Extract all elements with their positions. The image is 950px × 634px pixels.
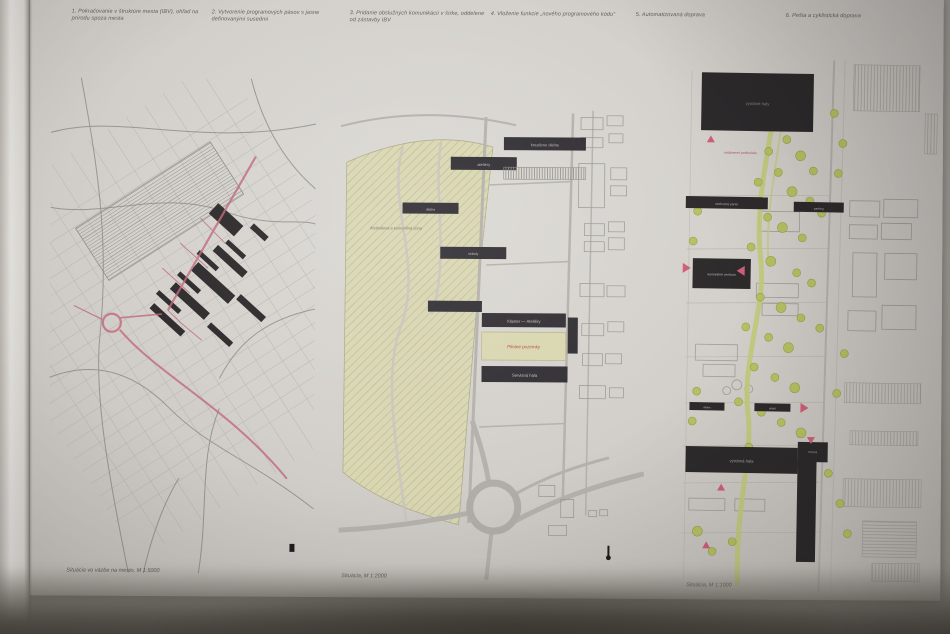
striped-bar: [504, 167, 586, 180]
street-grid: [48, 77, 316, 561]
svg-text:parking: parking: [814, 207, 824, 211]
l-building: [796, 442, 828, 562]
roundabout: [103, 314, 121, 332]
masterplan-map: festivalová a komunitná zóna: [338, 54, 646, 581]
heading-step-6: 6. Pešia a cyklistická doprava: [786, 13, 924, 21]
svg-text:dielne: dielne: [703, 405, 711, 409]
parking-combs: [842, 65, 939, 582]
svg-text:Servisná hala: Servisná hala: [512, 373, 538, 378]
svg-text:komunitné centrum: komunitné centrum: [708, 272, 736, 276]
scale-mark: [606, 546, 611, 560]
heading-step-3: 3. Pridanie obslužných komunikácií v šír…: [350, 10, 488, 25]
trees: [684, 85, 859, 558]
svg-text:výrobná hala: výrobná hala: [730, 458, 755, 463]
poster-edge-shadow: [29, 0, 32, 634]
field-note: festivalová a komunitná zóna: [370, 225, 422, 230]
svg-text:tržnica: tržnica: [808, 450, 817, 454]
svg-text:dielne: dielne: [426, 208, 436, 212]
heading-step-4: 4. Vloženie funkcie „nového programového…: [491, 11, 629, 19]
red-note: nadzemné parkovisko: [724, 151, 757, 156]
svg-text:výrobné haly: výrobné haly: [746, 101, 771, 106]
photo-of-architecture-poster: 1. Pokračovanie v štruktúre mesta (IBV),…: [0, 0, 950, 634]
green-path: [737, 79, 780, 587]
main-roads: [48, 77, 316, 574]
svg-text:sklad: sklad: [769, 406, 776, 410]
heading-step-5: 5. Automatizovaná doprava: [636, 12, 774, 20]
svg-text:Pilotné pozemky: Pilotné pozemky: [507, 344, 541, 349]
scale-mark: [289, 544, 294, 552]
city-context-map: [48, 77, 316, 574]
detail-plan-map: výrobné haly nadzemné parkovisko obchodn…: [675, 50, 939, 599]
svg-text:sklady: sklady: [468, 252, 478, 256]
heading-step-2: 2. Vytvorenie programových pásov s jasne…: [212, 9, 350, 24]
svg-text:Klaster — Ateliéry: Klaster — Ateliéry: [507, 319, 541, 324]
svg-text:obchodný parter: obchodný parter: [715, 202, 739, 206]
heading-step-1: 1. Pokračovanie v štruktúre mesta (IBV),…: [72, 8, 210, 23]
blurred-foreground-shadow: [150, 585, 850, 634]
svg-text:ateliéry: ateliéry: [477, 162, 490, 167]
wall-edge-strip: [0, 0, 30, 634]
poster-sheet: 1. Pokračovanie v štruktúre mesta (IBV),…: [24, 0, 944, 601]
roundabout: [470, 483, 518, 531]
svg-text:kreatívne dielne: kreatívne dielne: [531, 142, 560, 147]
